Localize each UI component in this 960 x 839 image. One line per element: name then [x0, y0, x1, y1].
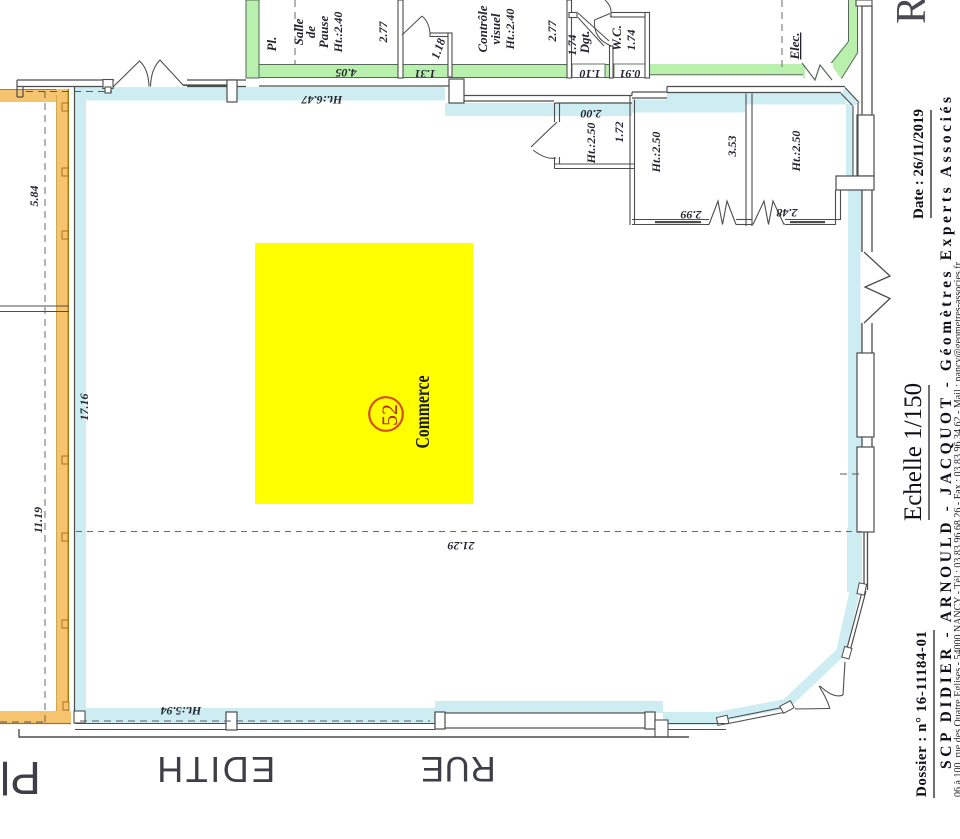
svg-text:Ht.:5.94: Ht.:5.94	[161, 704, 203, 718]
svg-text:Ht.:2.40: Ht.:2.40	[331, 12, 345, 54]
svg-text:4.05: 4.05	[336, 66, 358, 80]
svg-text:Commerce: Commerce	[412, 375, 434, 448]
svg-text:Pl.: Pl.	[264, 37, 279, 52]
svg-text:1.10: 1.10	[580, 67, 601, 81]
svg-text:RUE: RUE	[420, 749, 495, 788]
svg-text:Elec.: Elec.	[787, 32, 802, 60]
svg-text:Ht.:2.50: Ht.:2.50	[649, 132, 663, 174]
svg-text:1.31: 1.31	[415, 67, 436, 81]
svg-text:1.74: 1.74	[624, 30, 638, 51]
svg-text:3.53: 3.53	[725, 136, 739, 158]
svg-text:2.77: 2.77	[545, 20, 559, 43]
svg-text:Date : 26/11/2019: Date : 26/11/2019	[911, 109, 927, 219]
svg-text:Echelle 1/150: Echelle 1/150	[900, 383, 927, 521]
svg-text:Pl,: Pl,	[0, 752, 41, 804]
svg-text:visuel: visuel	[488, 13, 503, 44]
svg-text:Pause: Pause	[316, 16, 331, 49]
svg-text:R: R	[889, 0, 935, 24]
svg-text:11.19: 11.19	[31, 507, 45, 533]
svg-text:Ht.:2.40: Ht.:2.40	[503, 9, 517, 51]
svg-text:5.84: 5.84	[27, 186, 41, 207]
svg-text:2.48: 2.48	[777, 206, 799, 220]
svg-text:2.77: 2.77	[376, 21, 390, 44]
svg-text:2.00: 2.00	[581, 107, 603, 121]
svg-text:Dgt.: Dgt.	[577, 31, 592, 55]
svg-text:2.99: 2.99	[681, 208, 703, 222]
svg-text:52: 52	[377, 404, 402, 426]
svg-text:0.91: 0.91	[620, 67, 641, 81]
svg-text:Dossier : n° 16-11184-01: Dossier : n° 16-11184-01	[914, 631, 930, 797]
svg-text:EDITH: EDITH	[155, 749, 276, 790]
svg-text:Ht.:2.50: Ht.:2.50	[584, 123, 598, 165]
svg-text:Ht.:6.47: Ht.:6.47	[301, 93, 344, 107]
svg-text:1.72: 1.72	[612, 122, 626, 143]
svg-text:Ht.:2.50: Ht.:2.50	[789, 131, 803, 173]
svg-text:21.29: 21.29	[448, 539, 476, 553]
svg-text:17.16: 17.16	[77, 394, 91, 421]
svg-text:06 à 100, rue des Quatre Eglis: 06 à 100, rue des Quatre Eglises - 54000…	[953, 261, 960, 797]
svg-text:W.C.: W.C.	[609, 25, 624, 51]
